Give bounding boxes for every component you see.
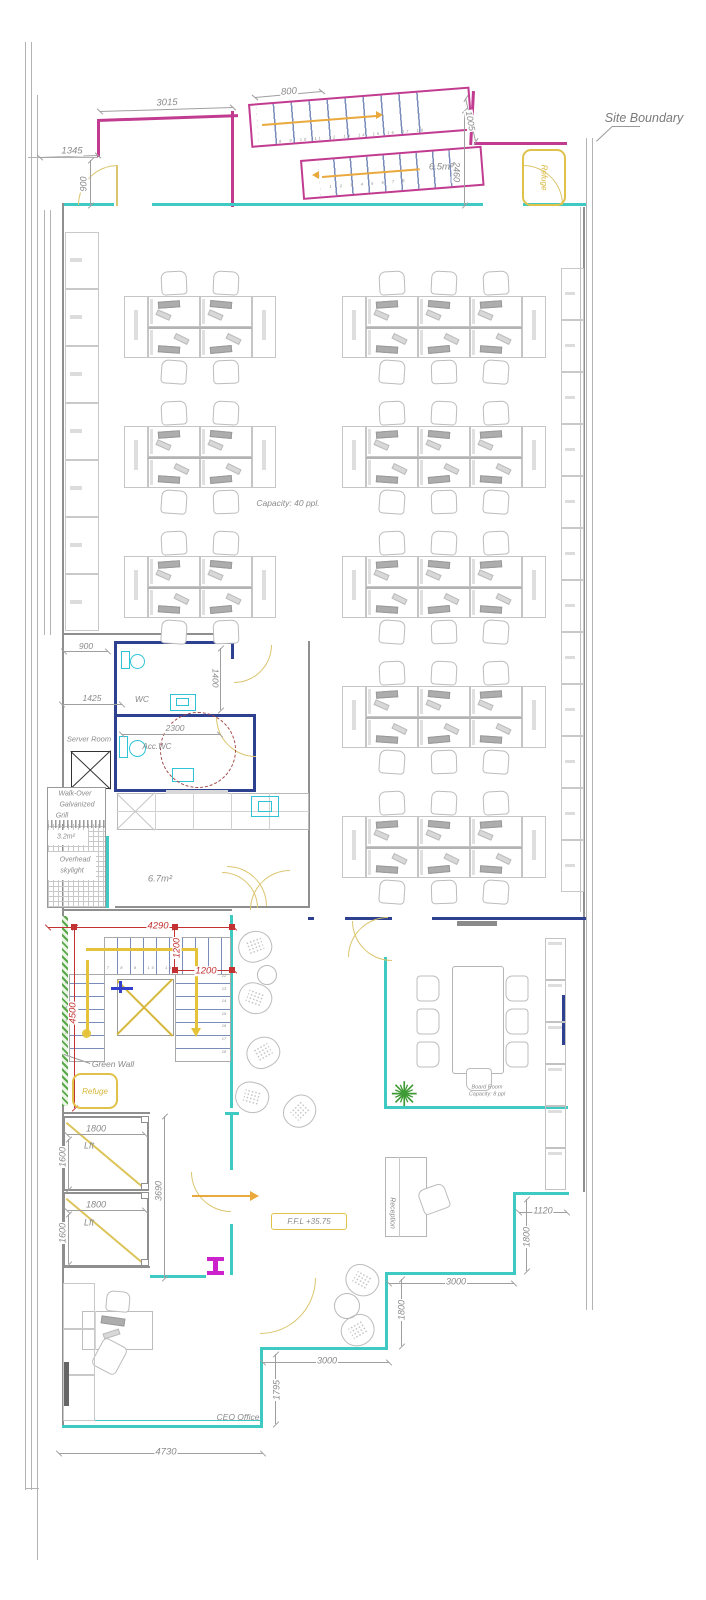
- storage-label: [70, 258, 82, 262]
- label-green-wall: Green Wall: [92, 1060, 134, 1069]
- storage-label: [565, 604, 575, 607]
- monitor: [480, 865, 502, 874]
- desk-label: [368, 429, 371, 454]
- task-chair: [431, 360, 458, 385]
- room-acc-wc: Acc.WC: [143, 743, 172, 751]
- sink-basin: [176, 698, 189, 706]
- dim-tick: [524, 1196, 530, 1202]
- storage-label: [70, 372, 82, 376]
- dim-tick: [524, 1268, 530, 1274]
- external-wall: [474, 142, 567, 145]
- desk-label: [368, 590, 371, 615]
- storage-label: [70, 543, 82, 547]
- dim-1400: 1400: [211, 668, 220, 689]
- desk-label: [368, 720, 371, 745]
- lift-door-jamb: [141, 1192, 149, 1199]
- site-boundary-leader: [596, 126, 613, 142]
- monitor: [376, 475, 398, 484]
- counter-grid: [117, 811, 309, 812]
- storage-label: [70, 315, 82, 319]
- dim-1200-v: 1200: [173, 937, 182, 959]
- desk-label: [368, 330, 371, 355]
- desk-divider: [366, 587, 522, 589]
- desk-label: [202, 559, 205, 584]
- task-chair: [431, 880, 458, 905]
- ffl-label: F.F.L +35.75: [287, 1217, 330, 1226]
- desk-label: [202, 460, 205, 485]
- external-wall: [97, 114, 238, 122]
- monitor: [480, 735, 502, 744]
- task-chair: [482, 749, 510, 775]
- refuge-top-box: Refuge: [522, 149, 566, 206]
- task-chair: [160, 359, 188, 385]
- kitchen-sink-basin: [258, 801, 272, 812]
- boardroom-chair: [417, 976, 440, 1002]
- dim-tick: [273, 1421, 279, 1427]
- task-chair: [160, 530, 187, 555]
- label-ceo-office: CEO Office: [217, 1413, 260, 1422]
- boardroom-chair: [506, 976, 529, 1002]
- glazing-wall: [106, 836, 109, 908]
- monitor: [480, 605, 502, 614]
- dim-4500: 4500: [68, 1001, 78, 1024]
- monitor: [376, 345, 398, 354]
- ceo-chair: [105, 1290, 131, 1313]
- monitor: [480, 345, 502, 354]
- task-chair: [378, 400, 405, 425]
- boardroom-chair: [506, 1042, 529, 1068]
- cabinet-label: [548, 942, 562, 945]
- dim-line: [164, 1116, 165, 1278]
- cabinet-label: [548, 1152, 562, 1155]
- glazing-wall: [225, 1112, 239, 1115]
- dim-tick: [88, 157, 94, 163]
- dim-1795: 1795: [273, 1379, 282, 1401]
- dim-3000-r2: 3000: [316, 1357, 338, 1366]
- glazing-wall: [260, 1347, 388, 1350]
- desk-label: [134, 440, 138, 470]
- desk-label: [420, 720, 423, 745]
- task-chair: [482, 879, 510, 905]
- steel-column: [213, 1260, 218, 1271]
- refuge-stair-box: Refuge: [72, 1073, 118, 1109]
- red-dim-node: [71, 924, 77, 930]
- storage-label: [565, 448, 575, 451]
- desk-divider: [148, 327, 252, 329]
- task-chair: [378, 270, 405, 295]
- task-chair: [482, 619, 510, 645]
- dim-1800-lift1: 1800: [85, 1125, 107, 1134]
- dim-line: [90, 160, 91, 205]
- task-chair: [160, 489, 188, 515]
- entrance-mat: [457, 921, 497, 926]
- storage-label: [565, 708, 575, 711]
- task-chair: [160, 619, 188, 645]
- desk-label: [420, 460, 423, 485]
- stair-path-start: [83, 1030, 90, 1037]
- dim-900-wc: 900: [78, 642, 94, 651]
- desk-label: [420, 819, 423, 844]
- round-table: [334, 1293, 360, 1319]
- label-board-room: Board Room: [472, 1085, 503, 1091]
- lift-door-jamb: [141, 1183, 149, 1190]
- desk-divider: [148, 587, 252, 589]
- task-chair: [378, 790, 405, 815]
- task-chair: [431, 620, 458, 645]
- area-kitchen: 6.7m²: [148, 874, 172, 884]
- desk-divider: [366, 847, 522, 849]
- arrow-head: [376, 111, 383, 119]
- dim-1800-lift2: 1800: [85, 1201, 107, 1210]
- arrow-head: [191, 1028, 201, 1037]
- dim-4730: 4730: [154, 1447, 177, 1457]
- toilet-bowl: [130, 654, 145, 669]
- note-overhead-2: skylight: [60, 868, 83, 875]
- desk-label: [472, 720, 475, 745]
- desk-label: [202, 330, 205, 355]
- dim-line: [464, 110, 465, 205]
- desk-divider: [95, 1311, 96, 1350]
- task-chair: [430, 790, 457, 815]
- monitor: [376, 605, 398, 614]
- note-walkover-1: Walk-Over: [59, 791, 92, 798]
- task-chair: [482, 270, 509, 295]
- desk-label: [420, 559, 423, 584]
- dim-3015: 3015: [155, 98, 178, 108]
- desk-label: [472, 330, 475, 355]
- desk: [418, 457, 470, 488]
- desk-label: [262, 440, 266, 470]
- desk-label: [262, 570, 266, 600]
- task-chair: [160, 400, 187, 425]
- stair-numbers-int-right: 12 13 14 15 16 17 18: [222, 970, 226, 1058]
- steel-column: [207, 1271, 224, 1275]
- desk-label: [368, 850, 371, 875]
- desk-label: [472, 689, 475, 714]
- site-boundary-label: Site Boundary: [605, 112, 684, 125]
- desk-label: [472, 850, 475, 875]
- counter-label: [166, 790, 228, 794]
- task-chair: [482, 359, 510, 385]
- desk-label: [150, 299, 153, 324]
- desk: [200, 587, 252, 618]
- wall: [62, 1112, 150, 1114]
- task-chair: [482, 530, 509, 555]
- desk: [418, 587, 470, 618]
- task-chair: [430, 400, 457, 425]
- desk: [200, 457, 252, 488]
- lift-door-jamb: [141, 1259, 149, 1266]
- desk-label: [150, 429, 153, 454]
- site-boundary-line: [31, 42, 32, 1490]
- door-arc: [174, 1115, 287, 1228]
- cabinet-label: [548, 1068, 562, 1071]
- lift-door-jamb: [141, 1116, 149, 1123]
- room-wc: WC: [135, 695, 149, 704]
- storage-label: [565, 292, 575, 295]
- task-chair: [213, 490, 240, 515]
- storage-label: [565, 344, 575, 347]
- dim-tick: [399, 1276, 405, 1282]
- desk-divider: [366, 327, 522, 329]
- desk-label: [368, 819, 371, 844]
- desk-label: [150, 590, 153, 615]
- section-marker: [111, 987, 133, 990]
- storage-label: [565, 760, 575, 763]
- site-boundary-line: [37, 95, 38, 1560]
- desk-divider: [148, 457, 252, 459]
- desk-label: [352, 700, 356, 730]
- dim-1600-lift2: 1600: [59, 1222, 68, 1244]
- external-wall: [231, 111, 234, 207]
- desk-label: [368, 460, 371, 485]
- reception-desk-divider: [399, 1157, 400, 1237]
- desk-label: [472, 299, 475, 324]
- dim-4290: 4290: [146, 921, 169, 931]
- desk-label: [352, 310, 356, 340]
- task-chair: [378, 489, 406, 515]
- task-chair: [431, 750, 458, 775]
- desk-label: [368, 559, 371, 584]
- arrow-head: [250, 1191, 259, 1201]
- boardroom-chair: [506, 1009, 529, 1035]
- dim-2300: 2300: [165, 724, 186, 733]
- glazing-wall: [152, 203, 483, 206]
- dim-3690: 3690: [155, 1180, 164, 1202]
- task-chair: [482, 489, 510, 515]
- dim-1800-r2: 1800: [398, 1299, 407, 1321]
- desk-label: [472, 460, 475, 485]
- floor-plan-canvas: ✳✳RefugeRefugeF.F.L +35.75Site Boundary3…: [0, 0, 706, 1600]
- task-chair: [378, 660, 405, 685]
- sideboard: [64, 1362, 69, 1406]
- monitor: [158, 345, 180, 354]
- room-server: Server Room: [67, 735, 111, 743]
- task-chair: [378, 879, 406, 905]
- grill-hash: [47, 820, 106, 828]
- desk-label: [532, 440, 536, 470]
- label-board-capacity: Capacity: 8 ppl: [469, 1092, 505, 1098]
- stair-path: [195, 950, 198, 1028]
- ffl-box: F.F.L +35.75: [271, 1213, 347, 1230]
- task-chair: [482, 790, 509, 815]
- dim-1600-lift1: 1600: [59, 1146, 68, 1168]
- label-reception: Reception: [389, 1197, 396, 1229]
- task-chair: [213, 620, 240, 645]
- monitor: [480, 475, 502, 484]
- task-chair: [213, 360, 240, 385]
- red-dim-node: [229, 924, 235, 930]
- dim-line: [64, 651, 108, 652]
- desk-label: [352, 440, 356, 470]
- desk: [418, 847, 470, 878]
- desk-label: [532, 700, 536, 730]
- refuge-top-label: Refuge: [539, 165, 548, 191]
- task-chair: [212, 400, 239, 425]
- desk: [418, 327, 470, 358]
- desk-label: [368, 299, 371, 324]
- cabinet-label: [548, 1026, 562, 1029]
- task-chair: [378, 530, 405, 555]
- area-stair-landing: 6.5m²: [429, 162, 453, 172]
- desk-label: [532, 310, 536, 340]
- monitor: [376, 735, 398, 744]
- arrow-head: [312, 171, 319, 179]
- toilet-cistern: [119, 736, 128, 758]
- round-table: [257, 965, 277, 985]
- desk-divider: [366, 717, 522, 719]
- red-dim-node: [172, 924, 178, 930]
- capacity-note: Capacity: 40 ppl.: [256, 499, 319, 508]
- site-boundary-line: [44, 210, 45, 635]
- dim-1800-r1: 1800: [523, 1226, 532, 1248]
- desk-label: [150, 460, 153, 485]
- glazing-wall: [150, 1275, 206, 1278]
- dim-tick: [399, 1343, 405, 1349]
- desk-label: [420, 689, 423, 714]
- desk-label: [420, 429, 423, 454]
- glazing-wall: [513, 1192, 569, 1195]
- task-chair: [430, 270, 457, 295]
- stair-numbers-int-left: 6 5 4 3 2: [65, 977, 67, 1040]
- desk-label: [352, 570, 356, 600]
- task-chair: [160, 270, 187, 295]
- dim-line: [122, 734, 220, 735]
- storage-label: [565, 396, 575, 399]
- task-chair: [430, 660, 457, 685]
- monitor: [158, 475, 180, 484]
- task-chair: [378, 749, 406, 775]
- storage-label: [70, 429, 82, 433]
- monitor: [376, 865, 398, 874]
- stair-path: [86, 960, 89, 1036]
- glazing-wall: [62, 1425, 263, 1428]
- desk-label: [352, 830, 356, 860]
- desk-label: [472, 590, 475, 615]
- task-chair: [482, 400, 509, 425]
- section-marker: [119, 981, 122, 993]
- dim-800: 800: [280, 86, 299, 97]
- dim-line: [67, 1210, 145, 1211]
- refuge-stair-label: Refuge: [82, 1087, 108, 1096]
- desk-label: [134, 310, 138, 340]
- toilet-cistern: [121, 651, 130, 669]
- dim-tick: [273, 1351, 279, 1357]
- dim-1200-h: 1200: [194, 966, 217, 976]
- site-boundary-line: [592, 138, 593, 1310]
- external-wall: [97, 121, 100, 157]
- dim-900-nw: 900: [80, 175, 89, 192]
- note-walkover-2: Galvanized: [59, 802, 94, 809]
- wall: [308, 641, 310, 908]
- boundary-foot: [25, 1488, 39, 1489]
- storage-label: [70, 486, 82, 490]
- dim-1345: 1345: [60, 146, 83, 156]
- storage-label: [565, 864, 575, 867]
- desk-label: [150, 330, 153, 355]
- desk-label: [472, 559, 475, 584]
- site-boundary-line: [50, 210, 51, 635]
- ceo-cabinet: [63, 1283, 95, 1329]
- site-boundary-line: [586, 138, 587, 1310]
- area-skylight: 3.2m²: [57, 834, 75, 841]
- cabinet-label: [548, 1110, 562, 1113]
- boardroom-chair: [417, 1009, 440, 1035]
- storage-label: [70, 600, 82, 604]
- desk: [200, 327, 252, 358]
- desk: [418, 717, 470, 748]
- task-chair: [482, 660, 509, 685]
- desk-label: [368, 689, 371, 714]
- site-boundary-leader: [612, 126, 640, 127]
- desk-label: [420, 590, 423, 615]
- desk-label: [420, 299, 423, 324]
- desk-label: [262, 310, 266, 340]
- desk-label: [472, 429, 475, 454]
- dim-line: [68, 1139, 69, 1189]
- desk-label: [202, 299, 205, 324]
- boardroom-chair: [417, 1042, 440, 1068]
- note-overhead-1: Overhead: [60, 857, 91, 864]
- dim-tick: [162, 1113, 168, 1119]
- boardroom-table: [452, 966, 504, 1074]
- desk-label: [420, 330, 423, 355]
- red-dim-node: [229, 967, 235, 973]
- desk-label: [134, 570, 138, 600]
- desk-label: [150, 559, 153, 584]
- storage-label: [565, 812, 575, 815]
- task-chair: [378, 359, 406, 385]
- dim-1425: 1425: [82, 694, 103, 703]
- task-chair: [212, 530, 239, 555]
- storage-label: [565, 656, 575, 659]
- flow-arrow: [192, 1195, 250, 1197]
- task-chair: [430, 530, 457, 555]
- glazing-wall: [513, 1192, 516, 1275]
- desk-label: [532, 570, 536, 600]
- desk-label: [202, 429, 205, 454]
- storage-label: [565, 500, 575, 503]
- note-walkover-3: Grill: [56, 813, 68, 820]
- task-chair: [378, 619, 406, 645]
- dim-3000-r1: 3000: [445, 1278, 467, 1287]
- dim-line: [67, 1134, 145, 1135]
- glazing-wall: [385, 1272, 516, 1275]
- dim-line: [62, 704, 122, 705]
- dim-1120: 1120: [532, 1207, 553, 1216]
- label-lift2: Lft: [84, 1219, 94, 1228]
- storage-label: [565, 552, 575, 555]
- partition-wall: [432, 917, 586, 920]
- stair-numbers-int-top: 7 8 9 10 11: [107, 966, 174, 970]
- label-lift1: Lft: [84, 1142, 94, 1151]
- cabinet-label: [548, 984, 562, 987]
- task-chair: [431, 490, 458, 515]
- desk-label: [472, 819, 475, 844]
- desk-label: [420, 850, 423, 875]
- desk-label: [532, 830, 536, 860]
- desk-label: [202, 590, 205, 615]
- site-boundary-line: [25, 42, 26, 1490]
- desk-divider: [366, 457, 522, 459]
- dim-line: [68, 1214, 69, 1264]
- monitor: [158, 605, 180, 614]
- task-chair: [212, 270, 239, 295]
